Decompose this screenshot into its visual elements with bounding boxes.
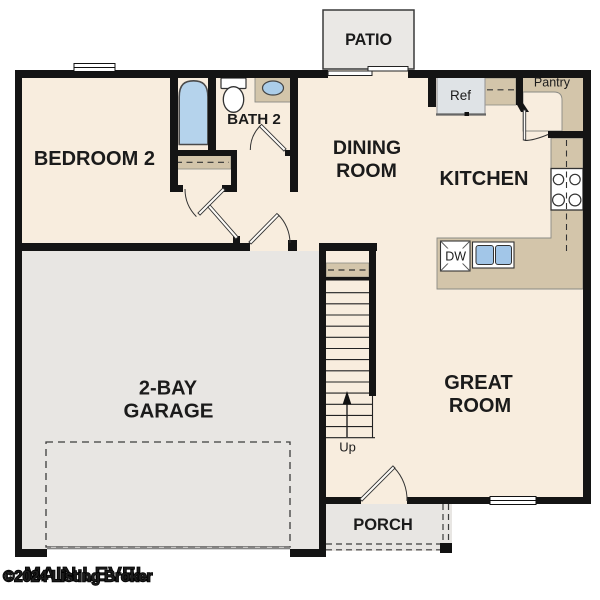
svg-text:Ref: Ref bbox=[450, 88, 471, 103]
svg-text:ROOM: ROOM bbox=[336, 160, 397, 182]
svg-text:GREAT: GREAT bbox=[444, 372, 513, 394]
svg-text:PORCH: PORCH bbox=[353, 516, 413, 534]
svg-text:BATH 2: BATH 2 bbox=[227, 111, 281, 128]
svg-text:DW: DW bbox=[445, 250, 466, 264]
svg-text:KITCHEN: KITCHEN bbox=[440, 168, 529, 190]
svg-text:BEDROOM 2: BEDROOM 2 bbox=[34, 148, 155, 170]
svg-text:ROOM: ROOM bbox=[449, 395, 511, 417]
svg-text:Pantry: Pantry bbox=[534, 76, 571, 90]
svg-text:©2024 Listing Broker: ©2024 Listing Broker bbox=[3, 569, 153, 586]
svg-text:GARAGE: GARAGE bbox=[124, 400, 214, 423]
svg-text:2-BAY: 2-BAY bbox=[139, 378, 198, 400]
svg-text:PATIO: PATIO bbox=[345, 31, 392, 49]
svg-text:Up: Up bbox=[339, 440, 356, 455]
svg-text:DINING: DINING bbox=[333, 137, 401, 159]
